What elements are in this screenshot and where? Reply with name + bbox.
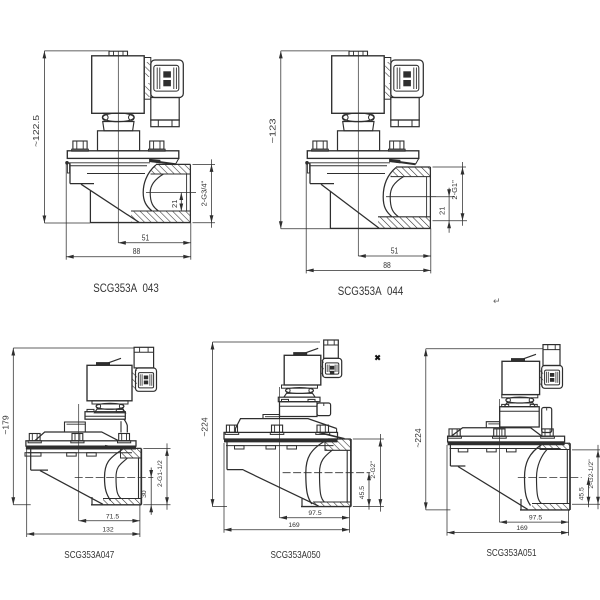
svg-text:~179: ~179	[0, 415, 10, 434]
svg-text:2-G3/4": 2-G3/4"	[199, 180, 208, 206]
svg-text:21: 21	[170, 200, 179, 208]
svg-text:2-G1-1/2: 2-G1-1/2	[157, 460, 164, 487]
svg-text:97.5: 97.5	[529, 515, 542, 522]
svg-text:2-G2": 2-G2"	[370, 460, 377, 478]
svg-text:21: 21	[437, 207, 446, 215]
svg-text:~224: ~224	[200, 417, 210, 436]
svg-text:↵: ↵	[493, 296, 501, 306]
svg-text:~122.5: ~122.5	[31, 115, 41, 147]
svg-text:45.5: 45.5	[359, 486, 366, 499]
svg-text:132: 132	[102, 527, 114, 534]
svg-text:88: 88	[133, 247, 141, 256]
svg-text:51: 51	[391, 247, 399, 256]
svg-text:30: 30	[141, 490, 148, 498]
svg-text:169: 169	[288, 522, 300, 529]
svg-text:SCG353A047: SCG353A047	[64, 549, 114, 561]
svg-text:✖: ✖	[374, 354, 381, 363]
svg-text:~224: ~224	[413, 428, 423, 447]
svg-text:2-G2-1/2": 2-G2-1/2"	[588, 459, 595, 489]
svg-text:169: 169	[516, 525, 528, 532]
svg-text:SCG353A051: SCG353A051	[487, 547, 537, 559]
svg-text:SCG353A050: SCG353A050	[271, 549, 321, 561]
svg-text:97.5: 97.5	[308, 510, 321, 517]
svg-text:51: 51	[142, 233, 150, 242]
svg-text:45.5: 45.5	[579, 487, 586, 500]
svg-text:SCG353A 043: SCG353A 043	[93, 281, 159, 295]
svg-text:71.5: 71.5	[106, 513, 119, 520]
svg-text:2-G1": 2-G1"	[450, 180, 459, 200]
svg-text:SCG353A 044: SCG353A 044	[338, 284, 404, 298]
svg-text:~123: ~123	[268, 118, 278, 143]
svg-text:88: 88	[383, 261, 391, 270]
